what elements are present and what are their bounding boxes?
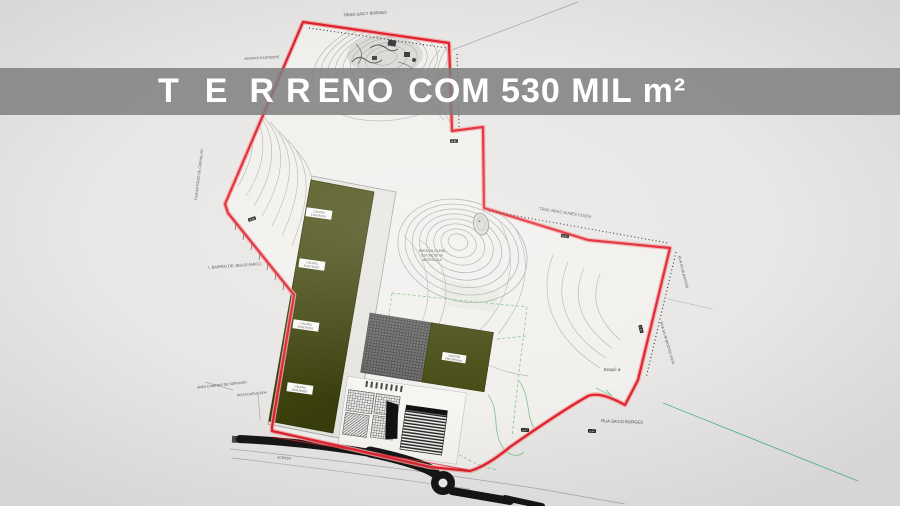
banner-text-rest: COM 530 MIL m² bbox=[408, 68, 686, 115]
acervo-label: ACERVO EXISTENTE bbox=[244, 55, 280, 61]
trav-ne-label: TRAV. BRAZ NUNES COSTA bbox=[539, 206, 592, 219]
video-frame: GALPÃO EXISTENTE GALPÃO EXISTENTE GALPÃO… bbox=[0, 0, 900, 506]
banner-letters-tight: ENO bbox=[318, 68, 395, 115]
teal-boundary-line bbox=[663, 403, 858, 481]
banner-letter: R bbox=[249, 68, 274, 115]
svg-text:E-01: E-01 bbox=[451, 140, 457, 143]
svg-text:530.000,00 m²: 530.000,00 m² bbox=[421, 253, 444, 257]
pista-label: PISTA DUPLICADA bbox=[237, 390, 268, 397]
acesso-label: ACESSO bbox=[277, 456, 292, 461]
roundabout-island bbox=[439, 479, 448, 488]
svg-text:MATRÍCULA: MATRÍCULA bbox=[422, 258, 442, 262]
title-banner: TERRENOCOM 530 MIL m² bbox=[0, 68, 900, 115]
servidao-label: ÁREA CAMINHO DE SERVIDÃO bbox=[197, 379, 248, 389]
rua-bottom-right-label: RUA SAICO BORGES bbox=[601, 418, 643, 424]
rua-right-lower-label: RUA SILVA BASTOS VISTA bbox=[659, 321, 675, 365]
svg-text:E-04: E-04 bbox=[522, 429, 528, 432]
street-top-label: TRINO SAICY BORGES bbox=[343, 9, 387, 17]
street-left-label: RUA ANTONIO DE CARVALHO bbox=[194, 149, 204, 200]
hatched-building bbox=[361, 313, 432, 382]
svg-text:E-06: E-06 bbox=[589, 430, 595, 433]
banner-letter: T bbox=[158, 68, 179, 115]
striped-building bbox=[400, 410, 447, 455]
banner-letter: R bbox=[286, 68, 311, 115]
bairro-label: I. BAIRRO DE JESUS AMICO bbox=[208, 261, 262, 270]
rua-right-upper-label: RUA SILVA BASTOS bbox=[677, 255, 689, 289]
svg-text:ÁREA DA GLEBA: ÁREA DA GLEBA bbox=[419, 249, 446, 253]
banner-letter: E bbox=[205, 68, 228, 115]
seapo-label: Seapó ø bbox=[603, 367, 620, 372]
